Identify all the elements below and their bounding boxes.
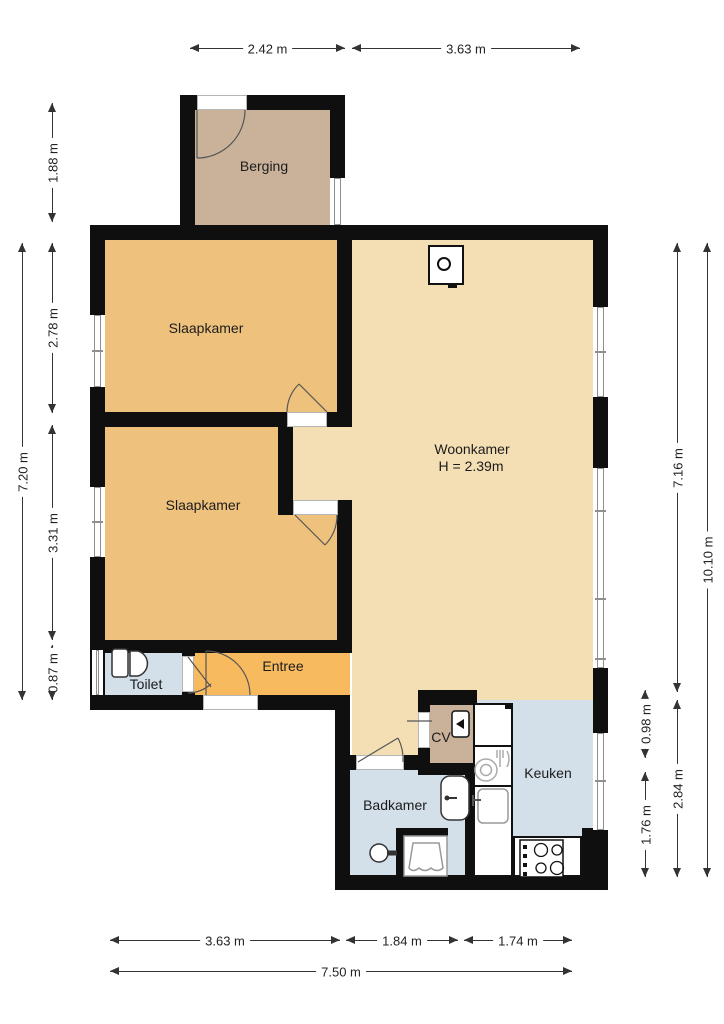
room-label-berging: Berging	[240, 158, 288, 174]
wall	[180, 95, 195, 225]
door-opening-cv	[418, 712, 430, 748]
wall	[327, 412, 337, 427]
room-slaapkamer-2	[105, 427, 278, 640]
dimension-top-berging: 2.42 m	[190, 48, 345, 49]
wall	[182, 692, 195, 695]
dimension-left-toilet: 0.87 m	[52, 645, 53, 700]
wall	[105, 412, 287, 427]
wall	[337, 500, 352, 653]
door-opening-entree	[203, 695, 258, 710]
room-badkamer	[350, 770, 465, 875]
room-label-slaapkamer-2: Slaapkamer	[166, 497, 241, 513]
door-opening-slaapkamer-2	[293, 500, 338, 515]
floorplan: Berging Slaapkamer Slaapkamer Woonkamer …	[0, 0, 724, 1024]
wall	[582, 828, 608, 890]
window	[593, 307, 608, 397]
counter-notch	[505, 703, 513, 709]
door-opening-badkamer	[356, 755, 404, 770]
room-label-badkamer: Badkamer	[363, 797, 427, 813]
window	[593, 733, 608, 830]
room-label-cv: CV	[431, 729, 450, 745]
door-opening-berging	[197, 95, 247, 110]
wall	[335, 695, 350, 890]
dimension-bottom-keuken: 1.74 m	[464, 940, 572, 941]
wall	[90, 225, 608, 240]
kitchen-counter	[513, 836, 582, 877]
door-opening-toilet	[182, 656, 194, 692]
wall	[90, 640, 352, 653]
wall	[465, 775, 473, 875]
wall	[90, 225, 105, 710]
window	[92, 650, 103, 695]
hall-corridor	[352, 690, 418, 755]
window	[330, 178, 345, 225]
room-slaapkamer-2-ext	[278, 515, 337, 640]
room-label-woonkamer: Woonkamer	[434, 441, 509, 457]
dimension-bottom-total: 7.50 m	[110, 971, 572, 972]
dimension-bottom-left: 3.63 m	[110, 940, 340, 941]
dimension-left-berging: 1.88 m	[52, 103, 53, 222]
window	[90, 487, 105, 557]
wall	[418, 763, 473, 775]
dimension-left-total: 7.20 m	[22, 243, 23, 700]
window	[90, 315, 105, 387]
dimension-left-slaapkamer-2: 3.31 m	[52, 425, 53, 640]
wall-shower	[396, 828, 404, 877]
wall	[337, 240, 352, 427]
dimension-right-badkamer: 1.76 m	[645, 772, 646, 877]
dimension-right-keuken: 2.84 m	[677, 700, 678, 877]
dimension-top-woonkamer: 3.63 m	[352, 48, 580, 49]
wall	[335, 875, 608, 890]
dimension-right-woonkamer: 7.16 m	[677, 243, 678, 692]
dimension-left-slaapkamer-1: 2.78 m	[52, 243, 53, 413]
dimension-bottom-badkamer: 1.84 m	[346, 940, 458, 941]
hall-notch	[293, 427, 352, 500]
room-label-keuken: Keuken	[524, 765, 571, 781]
window	[593, 468, 608, 668]
dimension-right-total: 10.10 m	[707, 243, 708, 877]
wall	[418, 690, 477, 705]
kitchen-counter	[473, 703, 513, 877]
door-opening-slaapkamer-1	[287, 412, 327, 427]
room-label-entree: Entree	[262, 658, 303, 674]
wall	[418, 705, 430, 712]
room-label-woonkamer-height: H = 2.39m	[439, 458, 504, 474]
room-label-slaapkamer-1: Slaapkamer	[169, 320, 244, 336]
dimension-right-cv: 0.98 m	[645, 690, 646, 758]
wall	[418, 748, 430, 763]
room-label-toilet: Toilet	[130, 676, 163, 692]
